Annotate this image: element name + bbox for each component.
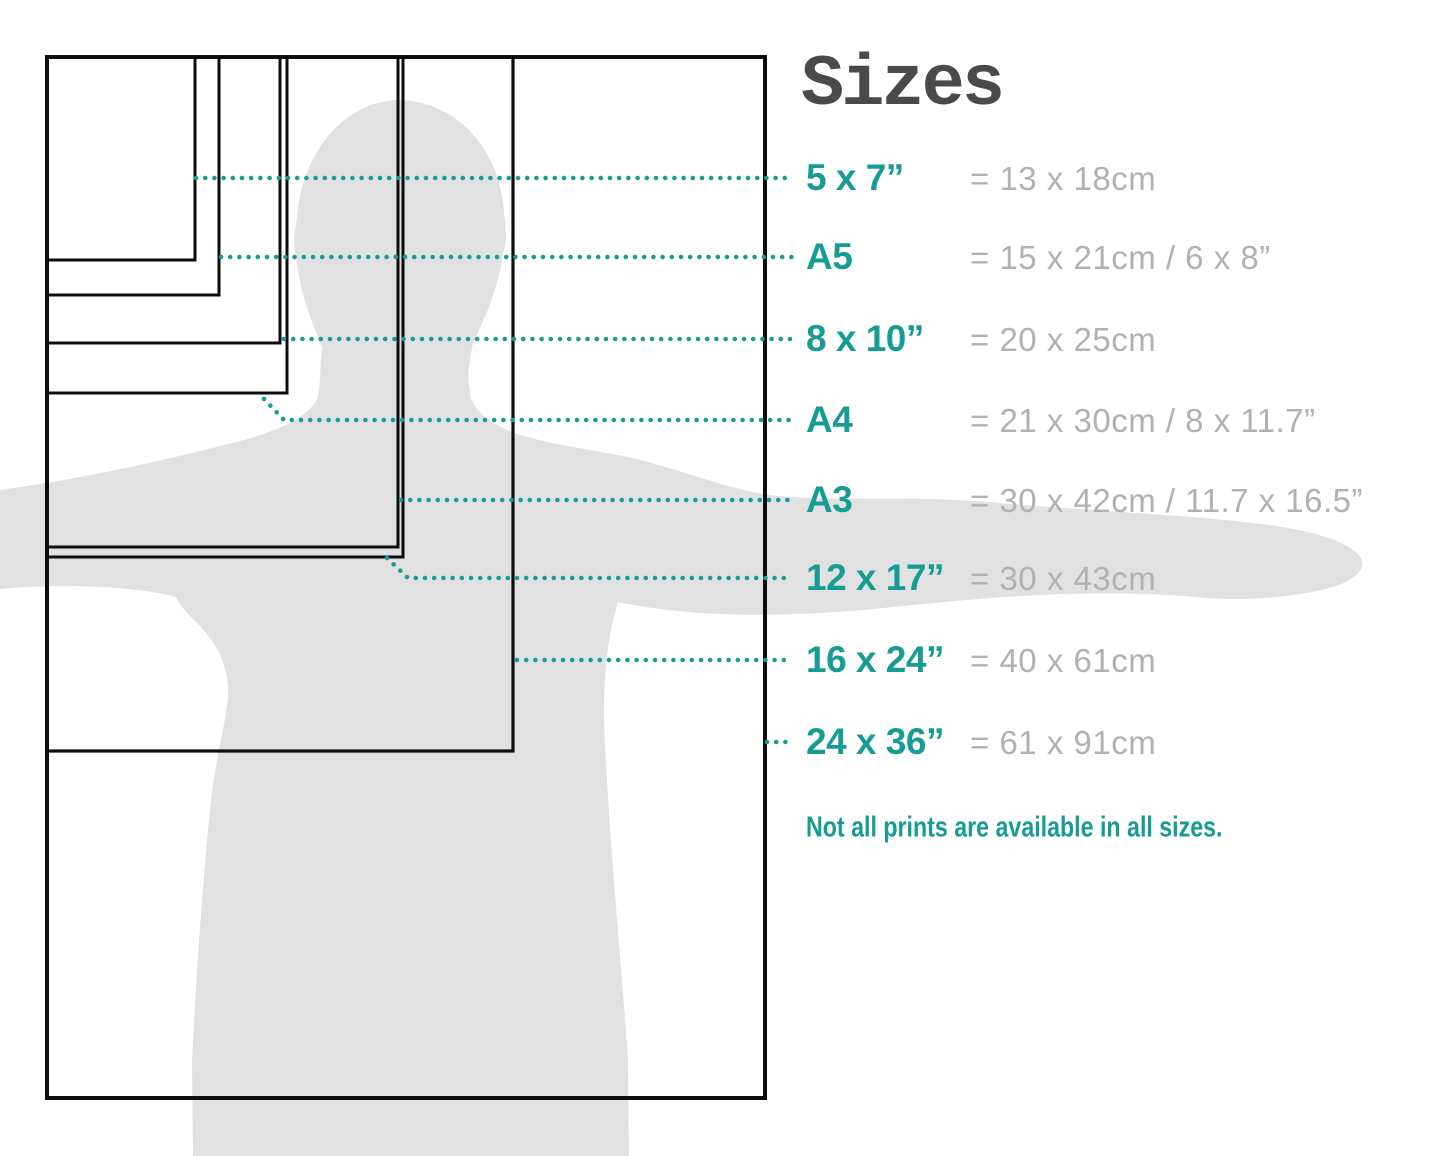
size-rect (47, 57, 195, 260)
size-row: 24 x 36”= 61 x 91cm (806, 721, 1156, 763)
size-label: 5 x 7” (806, 157, 970, 199)
size-row: A5= 15 x 21cm / 6 x 8” (806, 236, 1271, 278)
size-conversion: = 40 x 61cm (970, 642, 1156, 679)
size-row: 12 x 17”= 30 x 43cm (806, 557, 1156, 599)
print-size-chart: Sizes 5 x 7”= 13 x 18cmA5= 15 x 21cm / 6… (0, 0, 1445, 1156)
size-row: A3= 30 x 42cm / 11.7 x 16.5” (806, 479, 1363, 521)
size-rect (47, 57, 280, 343)
size-label: 16 x 24” (806, 639, 970, 681)
size-conversion: = 30 x 42cm / 11.7 x 16.5” (970, 482, 1363, 519)
size-row: A4= 21 x 30cm / 8 x 11.7” (806, 399, 1316, 441)
size-row: 8 x 10”= 20 x 25cm (806, 318, 1156, 360)
size-label: 8 x 10” (806, 318, 970, 360)
size-label: 24 x 36” (806, 721, 970, 763)
size-label: A4 (806, 399, 970, 441)
size-label: 12 x 17” (806, 557, 970, 599)
size-conversion: = 15 x 21cm / 6 x 8” (970, 239, 1271, 276)
availability-note: Not all prints are available in all size… (806, 812, 1222, 845)
size-conversion: = 20 x 25cm (970, 321, 1156, 358)
size-row: 16 x 24”= 40 x 61cm (806, 639, 1156, 681)
size-conversion: = 30 x 43cm (970, 560, 1156, 597)
size-label: A3 (806, 479, 970, 521)
size-conversion: = 61 x 91cm (970, 724, 1156, 761)
size-row: 5 x 7”= 13 x 18cm (806, 157, 1156, 199)
size-conversion: = 13 x 18cm (970, 160, 1156, 197)
size-label: A5 (806, 236, 970, 278)
size-diagram (0, 0, 1445, 1156)
size-conversion: = 21 x 30cm / 8 x 11.7” (970, 402, 1316, 439)
page-title: Sizes (801, 48, 1002, 124)
